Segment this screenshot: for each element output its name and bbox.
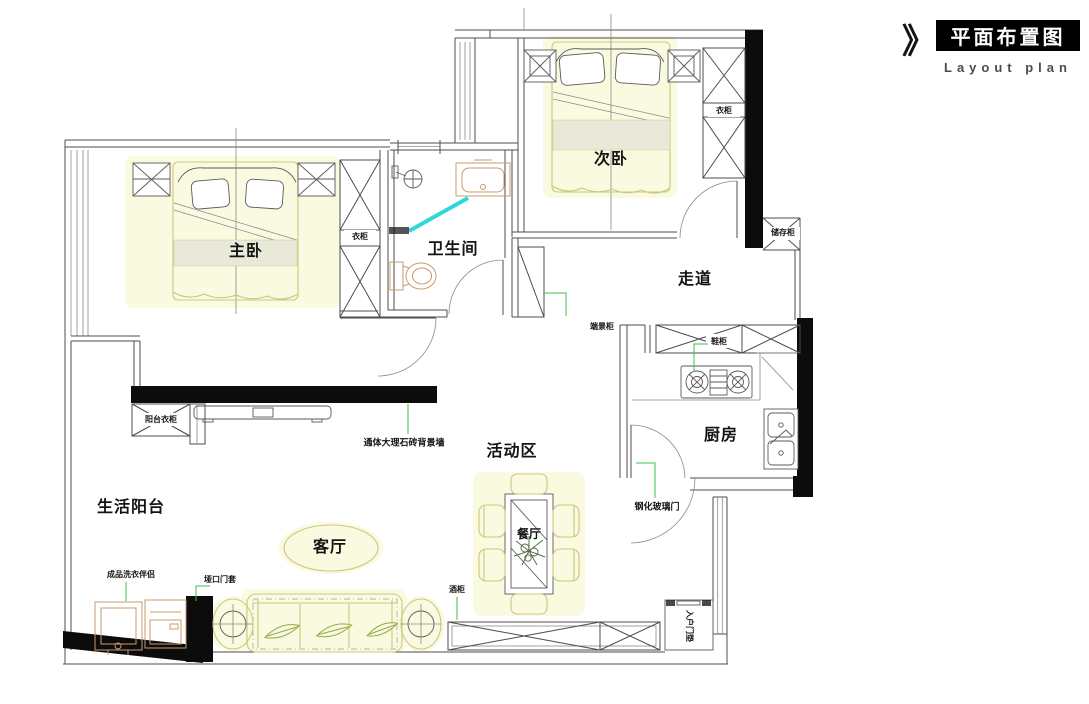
shoe-cabinet-row	[656, 325, 800, 353]
room-label-dining-room: 餐厅	[517, 528, 541, 540]
label-door-casing: 垭口门套	[204, 576, 236, 584]
side-table-left	[213, 599, 253, 649]
page-title: 平面布置图	[936, 20, 1080, 51]
room-label-corridor: 走道	[678, 272, 712, 288]
second-nightstand-left	[524, 50, 556, 82]
cabinets	[132, 48, 800, 650]
second-bedroom-door	[680, 181, 737, 238]
bathroom-sink	[456, 160, 510, 196]
label-balcony-wardrobe: 阳台衣柜	[145, 416, 177, 424]
wine-cabinet-long	[448, 622, 660, 650]
room-label-living-room: 客厅	[313, 540, 347, 556]
page-subtitle: Layout plan	[934, 60, 1082, 75]
tv-feature-wall	[131, 386, 437, 403]
label-wine-cabinet: 酒柜	[449, 586, 465, 594]
label-endview-cabinet: 端景柜	[590, 323, 614, 331]
tv-stand	[194, 406, 331, 422]
bathroom-door	[449, 260, 503, 315]
gas-stove	[681, 366, 752, 398]
label-second-wardrobe: 衣柜	[716, 107, 732, 115]
master-nightstand-left	[133, 163, 170, 196]
shower-head	[392, 166, 422, 188]
kitchen-sink	[764, 409, 798, 469]
label-shoe-cabinet: 鞋柜	[711, 338, 727, 346]
floor-plan-canvas	[0, 0, 1089, 704]
label-laundry-unit: 成品洗衣伴侣	[107, 571, 155, 579]
room-label-second-bedroom: 次卧	[594, 152, 628, 168]
second-nightstand-right	[668, 50, 700, 82]
label-glass-door: 钢化玻璃门	[634, 503, 679, 512]
label-storage-cabinet: 储存柜	[771, 229, 795, 237]
room-label-activity-area: 活动区	[486, 444, 537, 460]
side-table-right	[401, 599, 441, 649]
title-chevron-icon: 》	[902, 14, 936, 63]
floor-plan-page: 主卧 次卧 卫生间 走道 厨房 活动区 客厅 餐厅 生活阳台 衣柜 衣柜 储存柜…	[0, 0, 1089, 704]
kitchen-glass-door	[631, 425, 695, 543]
black-walls	[63, 30, 813, 663]
room-label-bathroom: 卫生间	[427, 242, 478, 258]
dining-table	[505, 494, 553, 594]
walls	[63, 8, 813, 664]
endview-cabinet-box	[518, 247, 544, 317]
master-nightstand-right	[298, 163, 335, 196]
shower-glass	[389, 198, 468, 234]
room-label-kitchen: 厨房	[704, 428, 738, 444]
room-label-master-bedroom: 主卧	[229, 244, 263, 260]
label-master-wardrobe: 衣柜	[352, 233, 368, 241]
page-title-text: 平面布置图	[951, 21, 1066, 50]
label-entry-mat: 入户门垫	[685, 610, 693, 642]
label-marble-wall: 通体大理石砖背景墙	[363, 439, 444, 448]
toilet	[390, 262, 436, 290]
leader-lines	[126, 293, 708, 620]
master-bedroom-door	[378, 318, 436, 376]
room-label-balcony: 生活阳台	[97, 500, 165, 516]
